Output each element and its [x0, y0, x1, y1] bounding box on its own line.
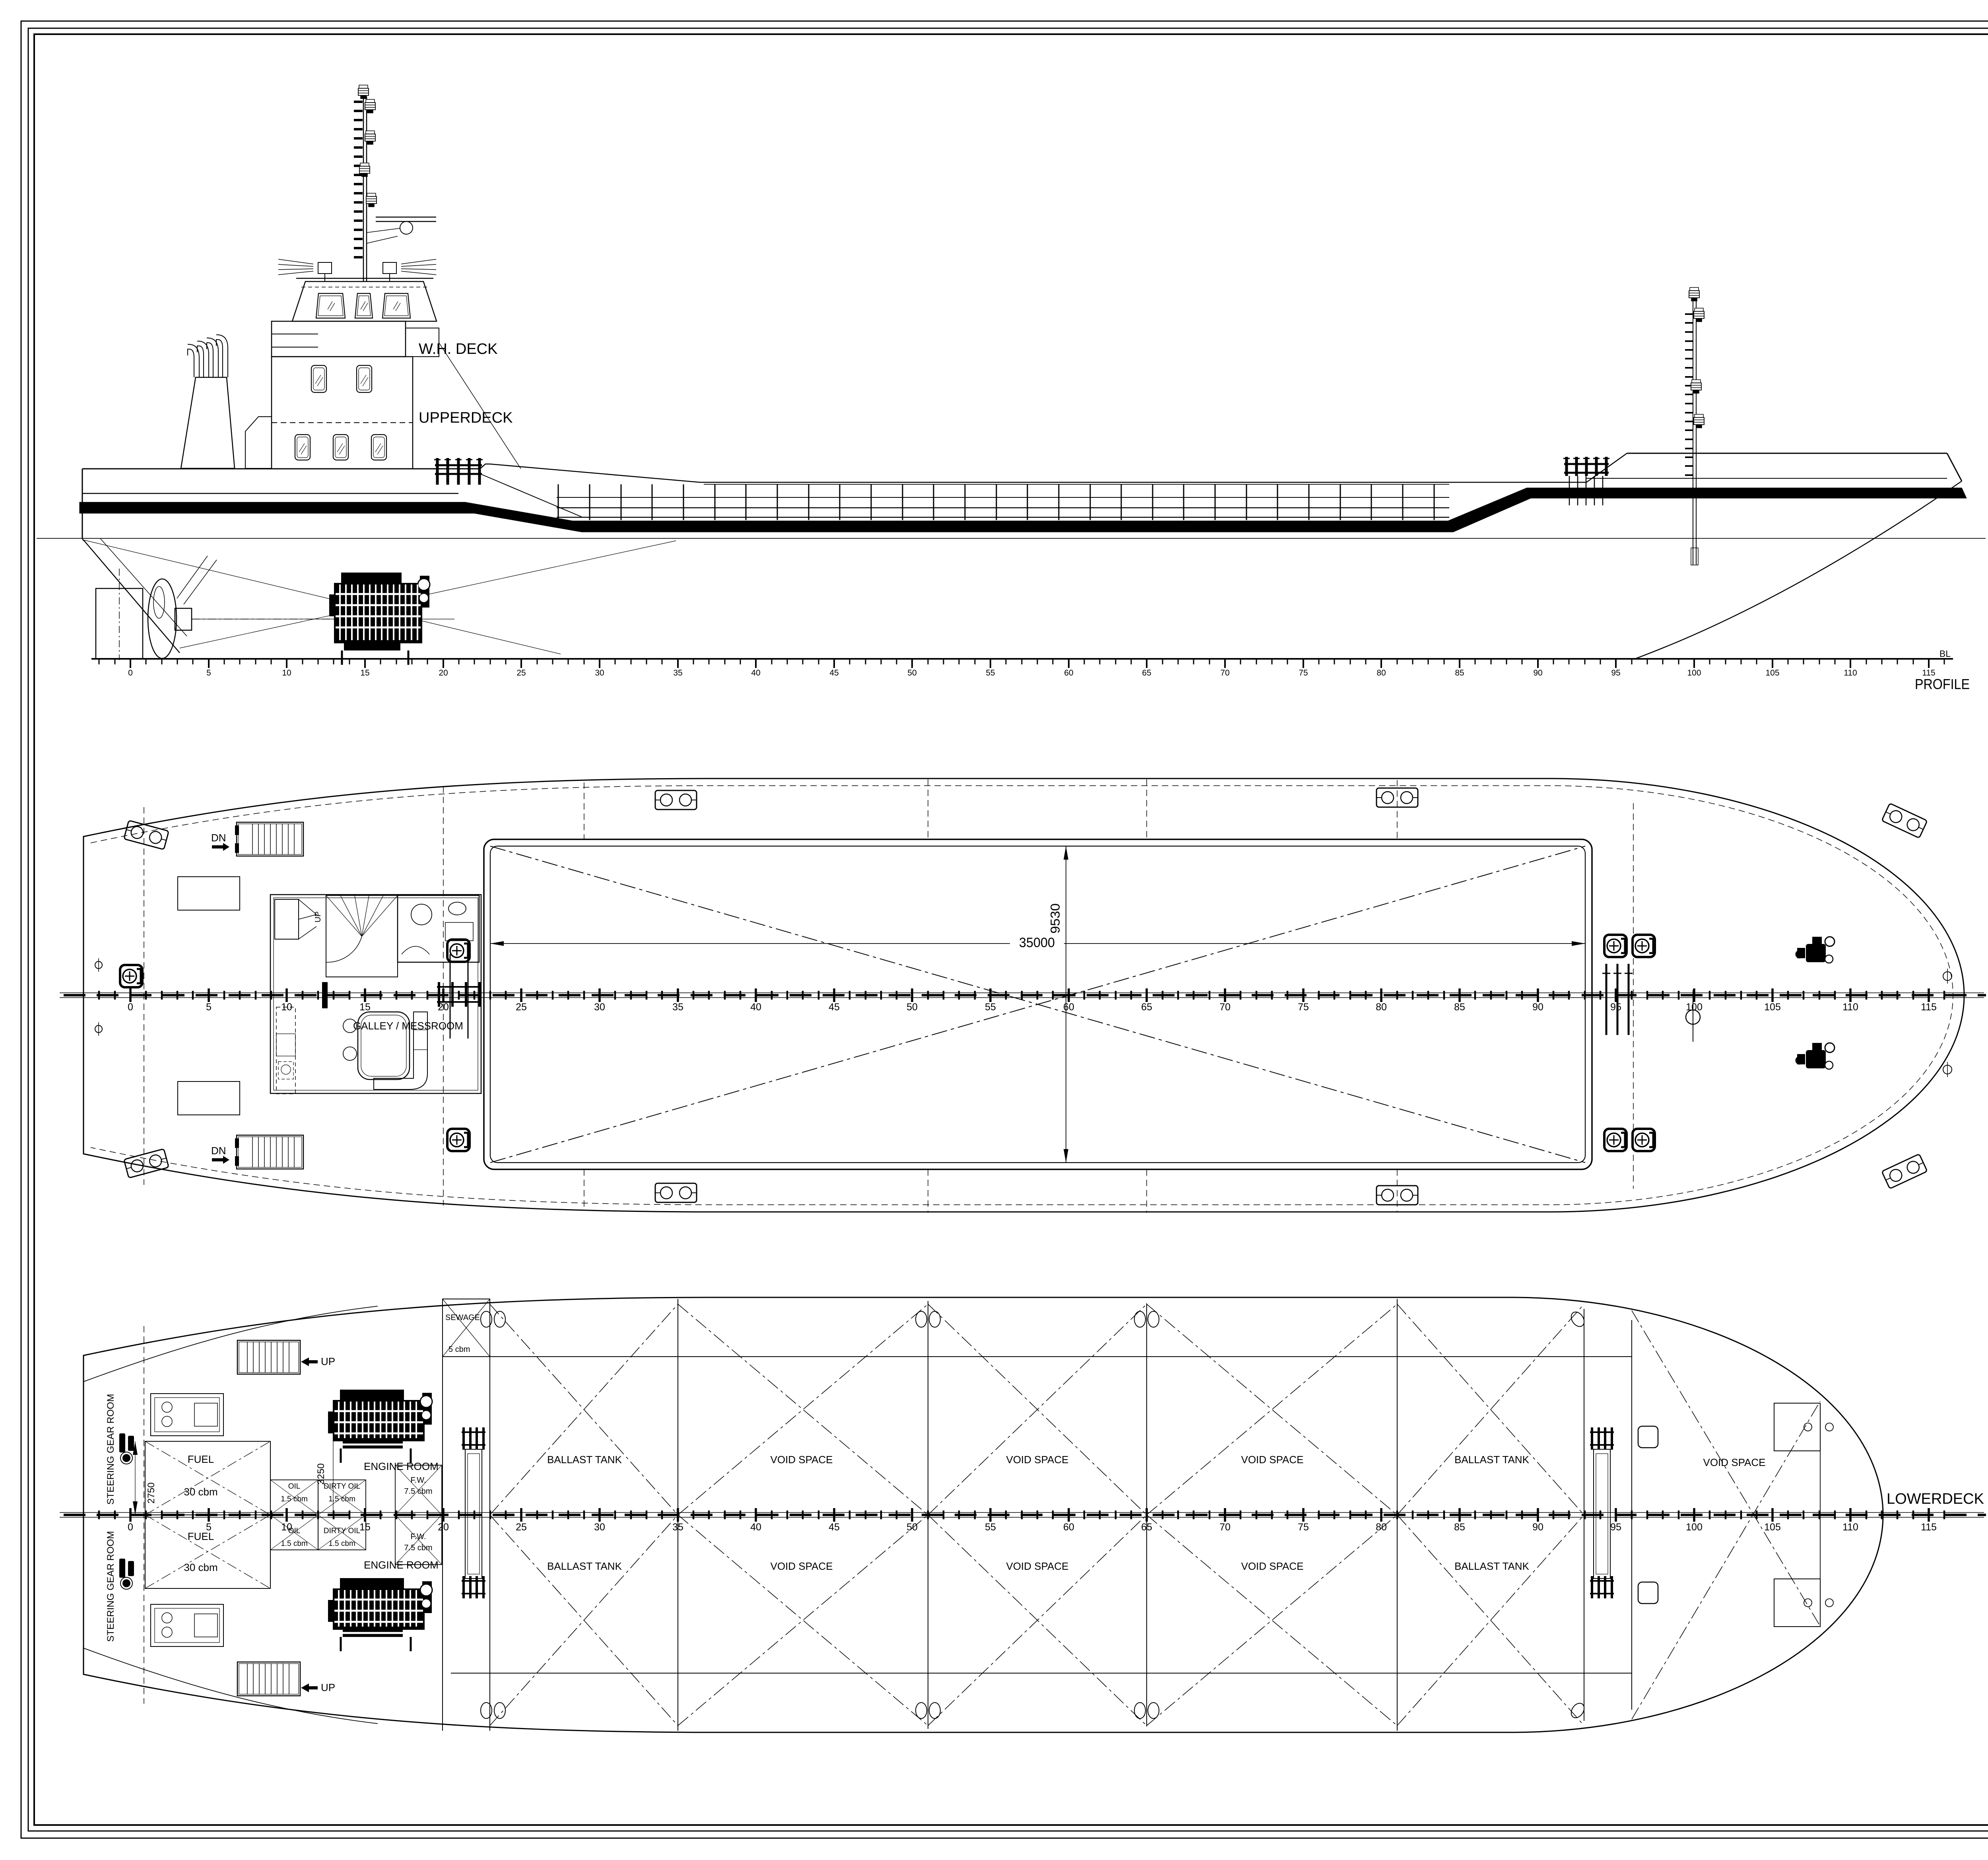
svg-text:15: 15 [360, 668, 369, 678]
svg-text:STEERING GEAR ROOM: STEERING GEAR ROOM [105, 1531, 116, 1642]
svg-text:GALLEY / MESSROOM: GALLEY / MESSROOM [353, 1020, 463, 1032]
svg-text:35: 35 [672, 1002, 683, 1013]
svg-text:FUEL: FUEL [188, 1453, 214, 1465]
svg-text:50: 50 [907, 1522, 918, 1533]
svg-text:1.5 cbm: 1.5 cbm [328, 1540, 355, 1548]
svg-text:F.W.: F.W. [411, 1532, 426, 1541]
svg-text:90: 90 [1532, 1522, 1543, 1533]
svg-text:85: 85 [1454, 1002, 1465, 1013]
svg-text:5: 5 [206, 1522, 212, 1533]
svg-text:45: 45 [829, 1522, 840, 1533]
svg-text:VOID SPACE: VOID SPACE [1241, 1560, 1303, 1572]
svg-text:1.5 cbm: 1.5 cbm [281, 1495, 308, 1503]
svg-text:ENGINE ROOM: ENGINE ROOM [364, 1460, 439, 1472]
svg-text:9530: 9530 [1048, 903, 1062, 934]
svg-text:1.5 cbm: 1.5 cbm [281, 1540, 308, 1548]
svg-text:55: 55 [985, 1002, 996, 1013]
svg-text:50: 50 [907, 1002, 918, 1013]
svg-text:55: 55 [986, 668, 995, 678]
svg-text:VOID SPACE: VOID SPACE [770, 1454, 833, 1466]
svg-text:85: 85 [1454, 1522, 1465, 1533]
svg-text:1.5 cbm: 1.5 cbm [328, 1495, 355, 1503]
svg-text:F.W.: F.W. [411, 1476, 426, 1485]
svg-text:30: 30 [594, 1002, 605, 1013]
svg-text:20: 20 [439, 668, 448, 678]
svg-text:15: 15 [359, 1002, 371, 1013]
svg-text:30 cbm: 30 cbm [184, 1486, 217, 1498]
svg-text:95: 95 [1610, 1522, 1621, 1533]
svg-text:95: 95 [1611, 668, 1620, 678]
svg-text:W.H. DECK: W.H. DECK [419, 341, 497, 357]
svg-text:UP: UP [314, 911, 322, 922]
svg-text:STEERING GEAR ROOM: STEERING GEAR ROOM [105, 1394, 116, 1505]
svg-text:UP: UP [321, 1355, 335, 1367]
svg-text:70: 70 [1219, 1522, 1231, 1533]
svg-text:35: 35 [672, 1522, 683, 1533]
svg-text:65: 65 [1141, 1002, 1152, 1013]
svg-text:0: 0 [128, 668, 133, 678]
svg-text:25: 25 [516, 668, 526, 678]
svg-text:80: 80 [1376, 1522, 1387, 1533]
svg-text:OIL: OIL [288, 1482, 301, 1491]
svg-text:25: 25 [516, 1522, 527, 1533]
svg-text:60: 60 [1064, 668, 1073, 678]
svg-text:DIRTY OIL: DIRTY OIL [324, 1527, 360, 1535]
svg-text:75: 75 [1298, 1522, 1309, 1533]
svg-text:BALLAST TANK: BALLAST TANK [547, 1454, 622, 1466]
svg-text:65: 65 [1141, 1522, 1152, 1533]
svg-text:110: 110 [1844, 668, 1857, 678]
svg-text:35000: 35000 [1019, 935, 1055, 950]
svg-text:5: 5 [206, 1002, 212, 1013]
svg-text:65: 65 [1142, 668, 1151, 678]
svg-text:40: 40 [750, 1002, 761, 1013]
svg-text:7.5 cbm: 7.5 cbm [404, 1487, 432, 1496]
svg-text:70: 70 [1219, 1002, 1231, 1013]
svg-text:105: 105 [1765, 668, 1779, 678]
svg-text:80: 80 [1376, 1002, 1387, 1013]
svg-text:85: 85 [1455, 668, 1464, 678]
svg-text:VOID SPACE: VOID SPACE [1006, 1454, 1068, 1466]
svg-text:7.5 cbm: 7.5 cbm [404, 1544, 432, 1552]
svg-text:115: 115 [1921, 1002, 1937, 1013]
svg-text:2750: 2750 [146, 1482, 157, 1503]
svg-text:45: 45 [829, 1002, 840, 1013]
svg-text:5: 5 [206, 668, 211, 678]
svg-text:BALLAST TANK: BALLAST TANK [1454, 1454, 1530, 1466]
svg-text:80: 80 [1376, 668, 1386, 678]
svg-text:40: 40 [750, 1522, 761, 1533]
svg-text:110: 110 [1842, 1522, 1858, 1533]
svg-text:20: 20 [438, 1522, 449, 1533]
svg-text:105: 105 [1764, 1522, 1781, 1533]
svg-text:30 cbm: 30 cbm [184, 1561, 217, 1573]
svg-text:VOID SPACE: VOID SPACE [1006, 1560, 1068, 1572]
svg-text:10: 10 [281, 1522, 292, 1533]
svg-text:35: 35 [673, 668, 682, 678]
svg-text:0: 0 [128, 1002, 133, 1013]
svg-text:70: 70 [1220, 668, 1229, 678]
svg-text:ENGINE ROOM: ENGINE ROOM [364, 1559, 439, 1571]
svg-text:DIRTY OIL: DIRTY OIL [324, 1482, 360, 1491]
svg-text:VOID SPACE: VOID SPACE [1241, 1454, 1303, 1466]
svg-text:90: 90 [1532, 1002, 1543, 1013]
svg-text:105: 105 [1764, 1002, 1781, 1013]
svg-text:115: 115 [1921, 1522, 1937, 1533]
svg-text:3250: 3250 [316, 1463, 326, 1484]
svg-text:100: 100 [1687, 668, 1701, 678]
svg-text:PROFILE: PROFILE [1915, 676, 1970, 692]
svg-text:60: 60 [1063, 1002, 1074, 1013]
svg-text:95: 95 [1610, 1002, 1621, 1013]
svg-text:5 cbm: 5 cbm [448, 1345, 470, 1354]
svg-text:DN: DN [211, 832, 226, 844]
svg-text:30: 30 [594, 1522, 605, 1533]
svg-text:BL: BL [1939, 648, 1951, 659]
svg-text:75: 75 [1298, 1002, 1309, 1013]
svg-text:40: 40 [751, 668, 760, 678]
svg-text:55: 55 [985, 1522, 996, 1533]
svg-text:UPPERDECK: UPPERDECK [419, 410, 513, 426]
svg-text:30: 30 [595, 668, 604, 678]
svg-text:45: 45 [829, 668, 839, 678]
svg-text:90: 90 [1533, 668, 1542, 678]
svg-text:75: 75 [1299, 668, 1308, 678]
svg-text:BALLAST TANK: BALLAST TANK [547, 1560, 622, 1572]
svg-text:100: 100 [1686, 1522, 1703, 1533]
svg-text:UP: UP [321, 1681, 335, 1693]
svg-text:25: 25 [516, 1002, 527, 1013]
svg-text:0: 0 [128, 1522, 133, 1533]
svg-text:60: 60 [1063, 1522, 1074, 1533]
svg-text:SEWAGE: SEWAGE [445, 1313, 480, 1322]
svg-text:50: 50 [907, 668, 916, 678]
svg-text:BALLAST TANK: BALLAST TANK [1454, 1560, 1530, 1572]
svg-text:10: 10 [282, 668, 291, 678]
svg-text:VOID SPACE: VOID SPACE [770, 1560, 833, 1572]
svg-text:LOWERDECK: LOWERDECK [1887, 1491, 1984, 1507]
svg-text:VOID SPACE: VOID SPACE [1703, 1456, 1765, 1468]
svg-text:110: 110 [1842, 1002, 1858, 1013]
svg-text:15: 15 [359, 1522, 371, 1533]
svg-text:DN: DN [211, 1145, 226, 1157]
